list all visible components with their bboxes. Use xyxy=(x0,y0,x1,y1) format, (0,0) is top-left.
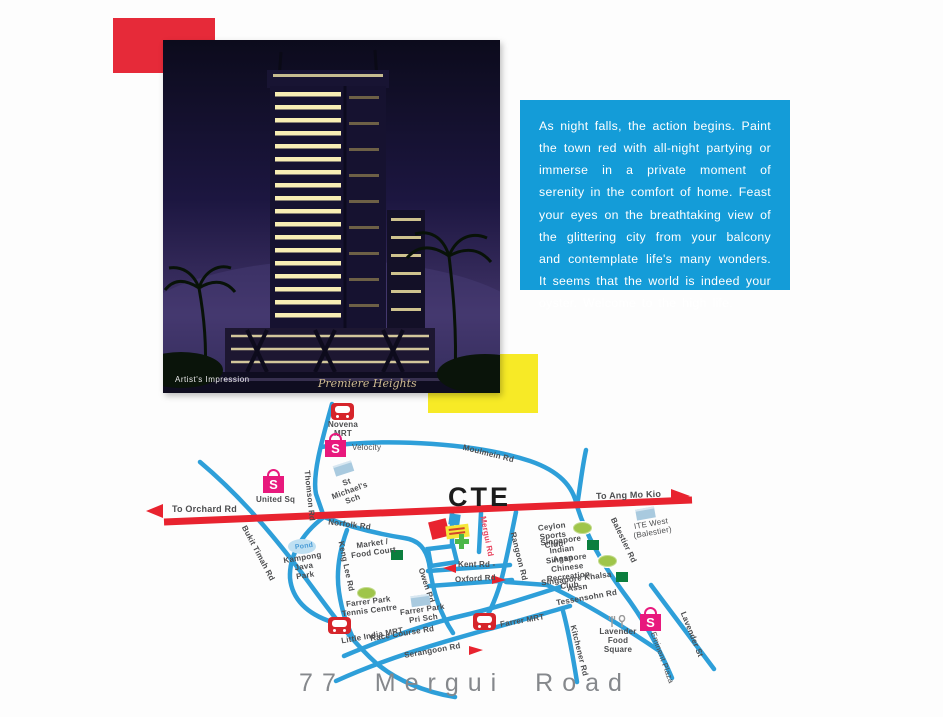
road-label-serangoon: Serangoon Rd xyxy=(404,642,462,661)
arrow-kent xyxy=(443,564,456,573)
mrt-window xyxy=(335,406,350,413)
road-label-rangoon: Rangoon Rd xyxy=(508,531,529,581)
arrow-to-orchard xyxy=(146,504,163,518)
address-title: 77 Mergui Road xyxy=(240,669,690,698)
farrer-mrt-label: Farrer MRT xyxy=(500,613,546,630)
intro-paragraph: As night falls, the action begins. Paint… xyxy=(539,115,771,314)
building-photo: Premiere Heights Artist's Impression xyxy=(163,40,500,393)
road-label-norfolk: Norfolk Rd xyxy=(328,518,372,532)
united-sq-label: United Sq xyxy=(256,496,295,505)
st-michaels-school-icon xyxy=(333,460,354,476)
brochure-page: Premiere Heights Artist's Impression As … xyxy=(0,0,943,717)
marker-green-cross-v xyxy=(459,534,464,549)
velocity-bag-icon: S xyxy=(325,440,346,457)
ceylon-sports-oval-icon xyxy=(572,521,593,535)
farrer-mrt-icon xyxy=(473,613,496,630)
road-moulmein-north xyxy=(577,450,586,506)
road-label-mergui: Mergui Rd xyxy=(478,516,495,558)
tower-crown xyxy=(267,70,389,88)
crown-light xyxy=(273,74,383,77)
khalsa-assn-icon xyxy=(616,572,628,582)
mrt-wheels xyxy=(478,625,481,628)
mrt-wheels xyxy=(333,629,336,632)
indian-assn-icon xyxy=(587,540,599,550)
novena-mrt-label: Novena MRT xyxy=(322,421,364,439)
artists-impression-caption: Artist's Impression xyxy=(175,375,250,384)
bag-letter: S xyxy=(331,441,340,456)
chinese-rec-oval-icon xyxy=(597,554,618,568)
farrer-park-pri-label: Farrer Park Pri Sch xyxy=(398,603,448,627)
bag-letter: S xyxy=(269,477,278,492)
road-label-bukit-timah: Bukit Timah Rd xyxy=(239,524,276,582)
to-orchard-label: To Orchard Rd xyxy=(172,504,237,514)
marker-yellow-tag xyxy=(445,524,469,540)
velocity-label: Velocity xyxy=(352,444,381,453)
market-food-court-label: Market / Food Court xyxy=(349,537,397,561)
property-marker-77-mergui xyxy=(428,512,476,560)
kampong-java-park-label: Kampong Java Park xyxy=(281,551,327,584)
tower-wing xyxy=(387,210,425,330)
mrt-window xyxy=(477,616,492,623)
road-label-oxford: Oxford Rd xyxy=(455,574,496,585)
novena-mrt-icon xyxy=(331,403,354,420)
marker-tag-text-lines xyxy=(449,527,465,531)
lavender-bag-icon: S xyxy=(640,614,661,631)
arrow-to-ang-mo-kio xyxy=(671,489,690,503)
mrt-wheels xyxy=(336,415,339,418)
tennis-centre-label: Farrer Park Tennis Centre xyxy=(337,594,401,619)
road-label-thomson: Thomson Rd xyxy=(302,470,316,522)
united-sq-bag-icon: S xyxy=(263,476,284,493)
intro-text-box: As night falls, the action begins. Paint… xyxy=(520,100,790,290)
mrt-window xyxy=(332,620,347,627)
building-illustration: Premiere Heights xyxy=(163,40,500,393)
bag-letter: S xyxy=(646,615,655,630)
building-script-text: Premiere Heights xyxy=(317,377,417,390)
lavender-food-square-label: Lavender Food Square xyxy=(596,628,640,655)
cte-label: CTE xyxy=(448,482,511,512)
to-ang-mo-kio-label: To Ang Mo Kio xyxy=(596,489,661,501)
road-label-kent: Kent Rd - xyxy=(458,561,495,570)
st-michaels-label: St Michael's Sch xyxy=(323,471,377,513)
road-label-lavender-st: Lavender St xyxy=(678,611,704,659)
road-label-moulmein: Moulmein Rd xyxy=(462,444,515,465)
ite-west-label: ITE West (Balestier) xyxy=(629,516,675,541)
arrow-serangoon xyxy=(469,646,483,655)
